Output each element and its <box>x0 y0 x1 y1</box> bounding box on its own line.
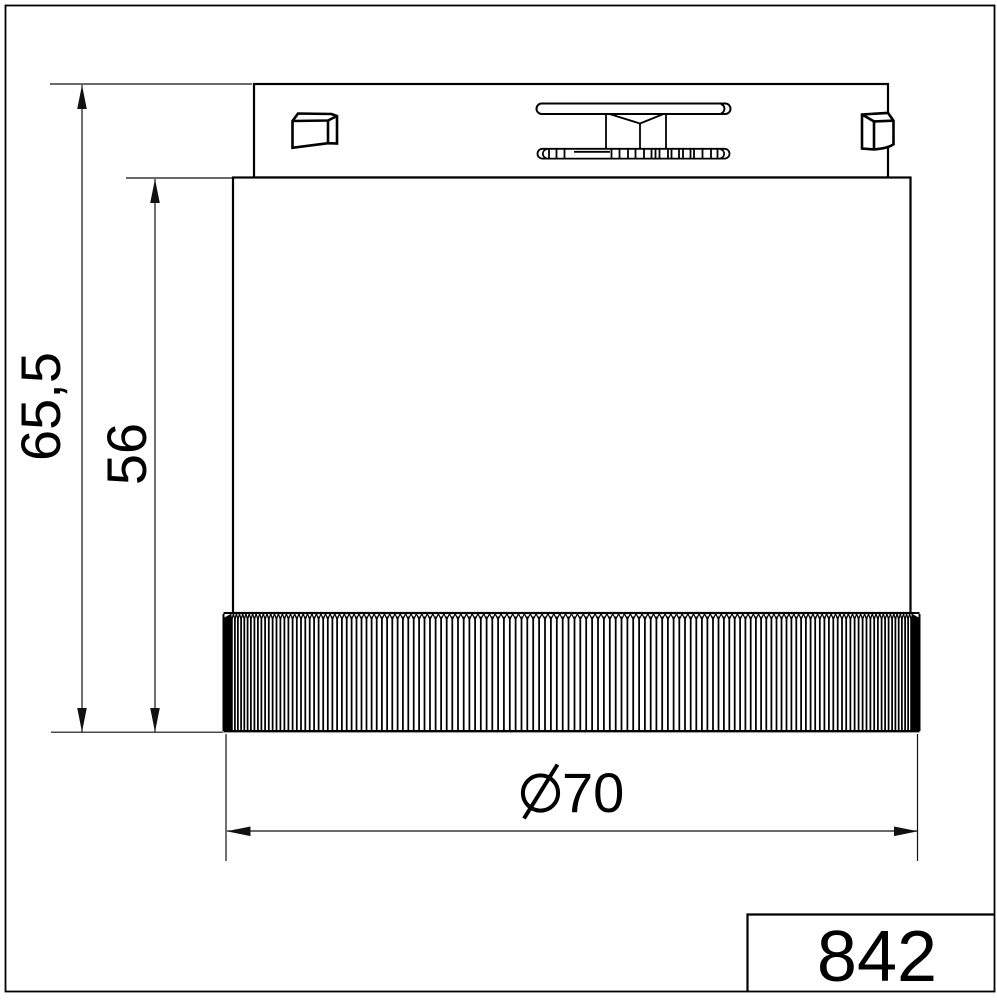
svg-text:70: 70 <box>562 761 624 824</box>
svg-text:65,5: 65,5 <box>9 352 72 461</box>
svg-text:842: 842 <box>817 917 937 997</box>
svg-text:56: 56 <box>95 423 158 485</box>
